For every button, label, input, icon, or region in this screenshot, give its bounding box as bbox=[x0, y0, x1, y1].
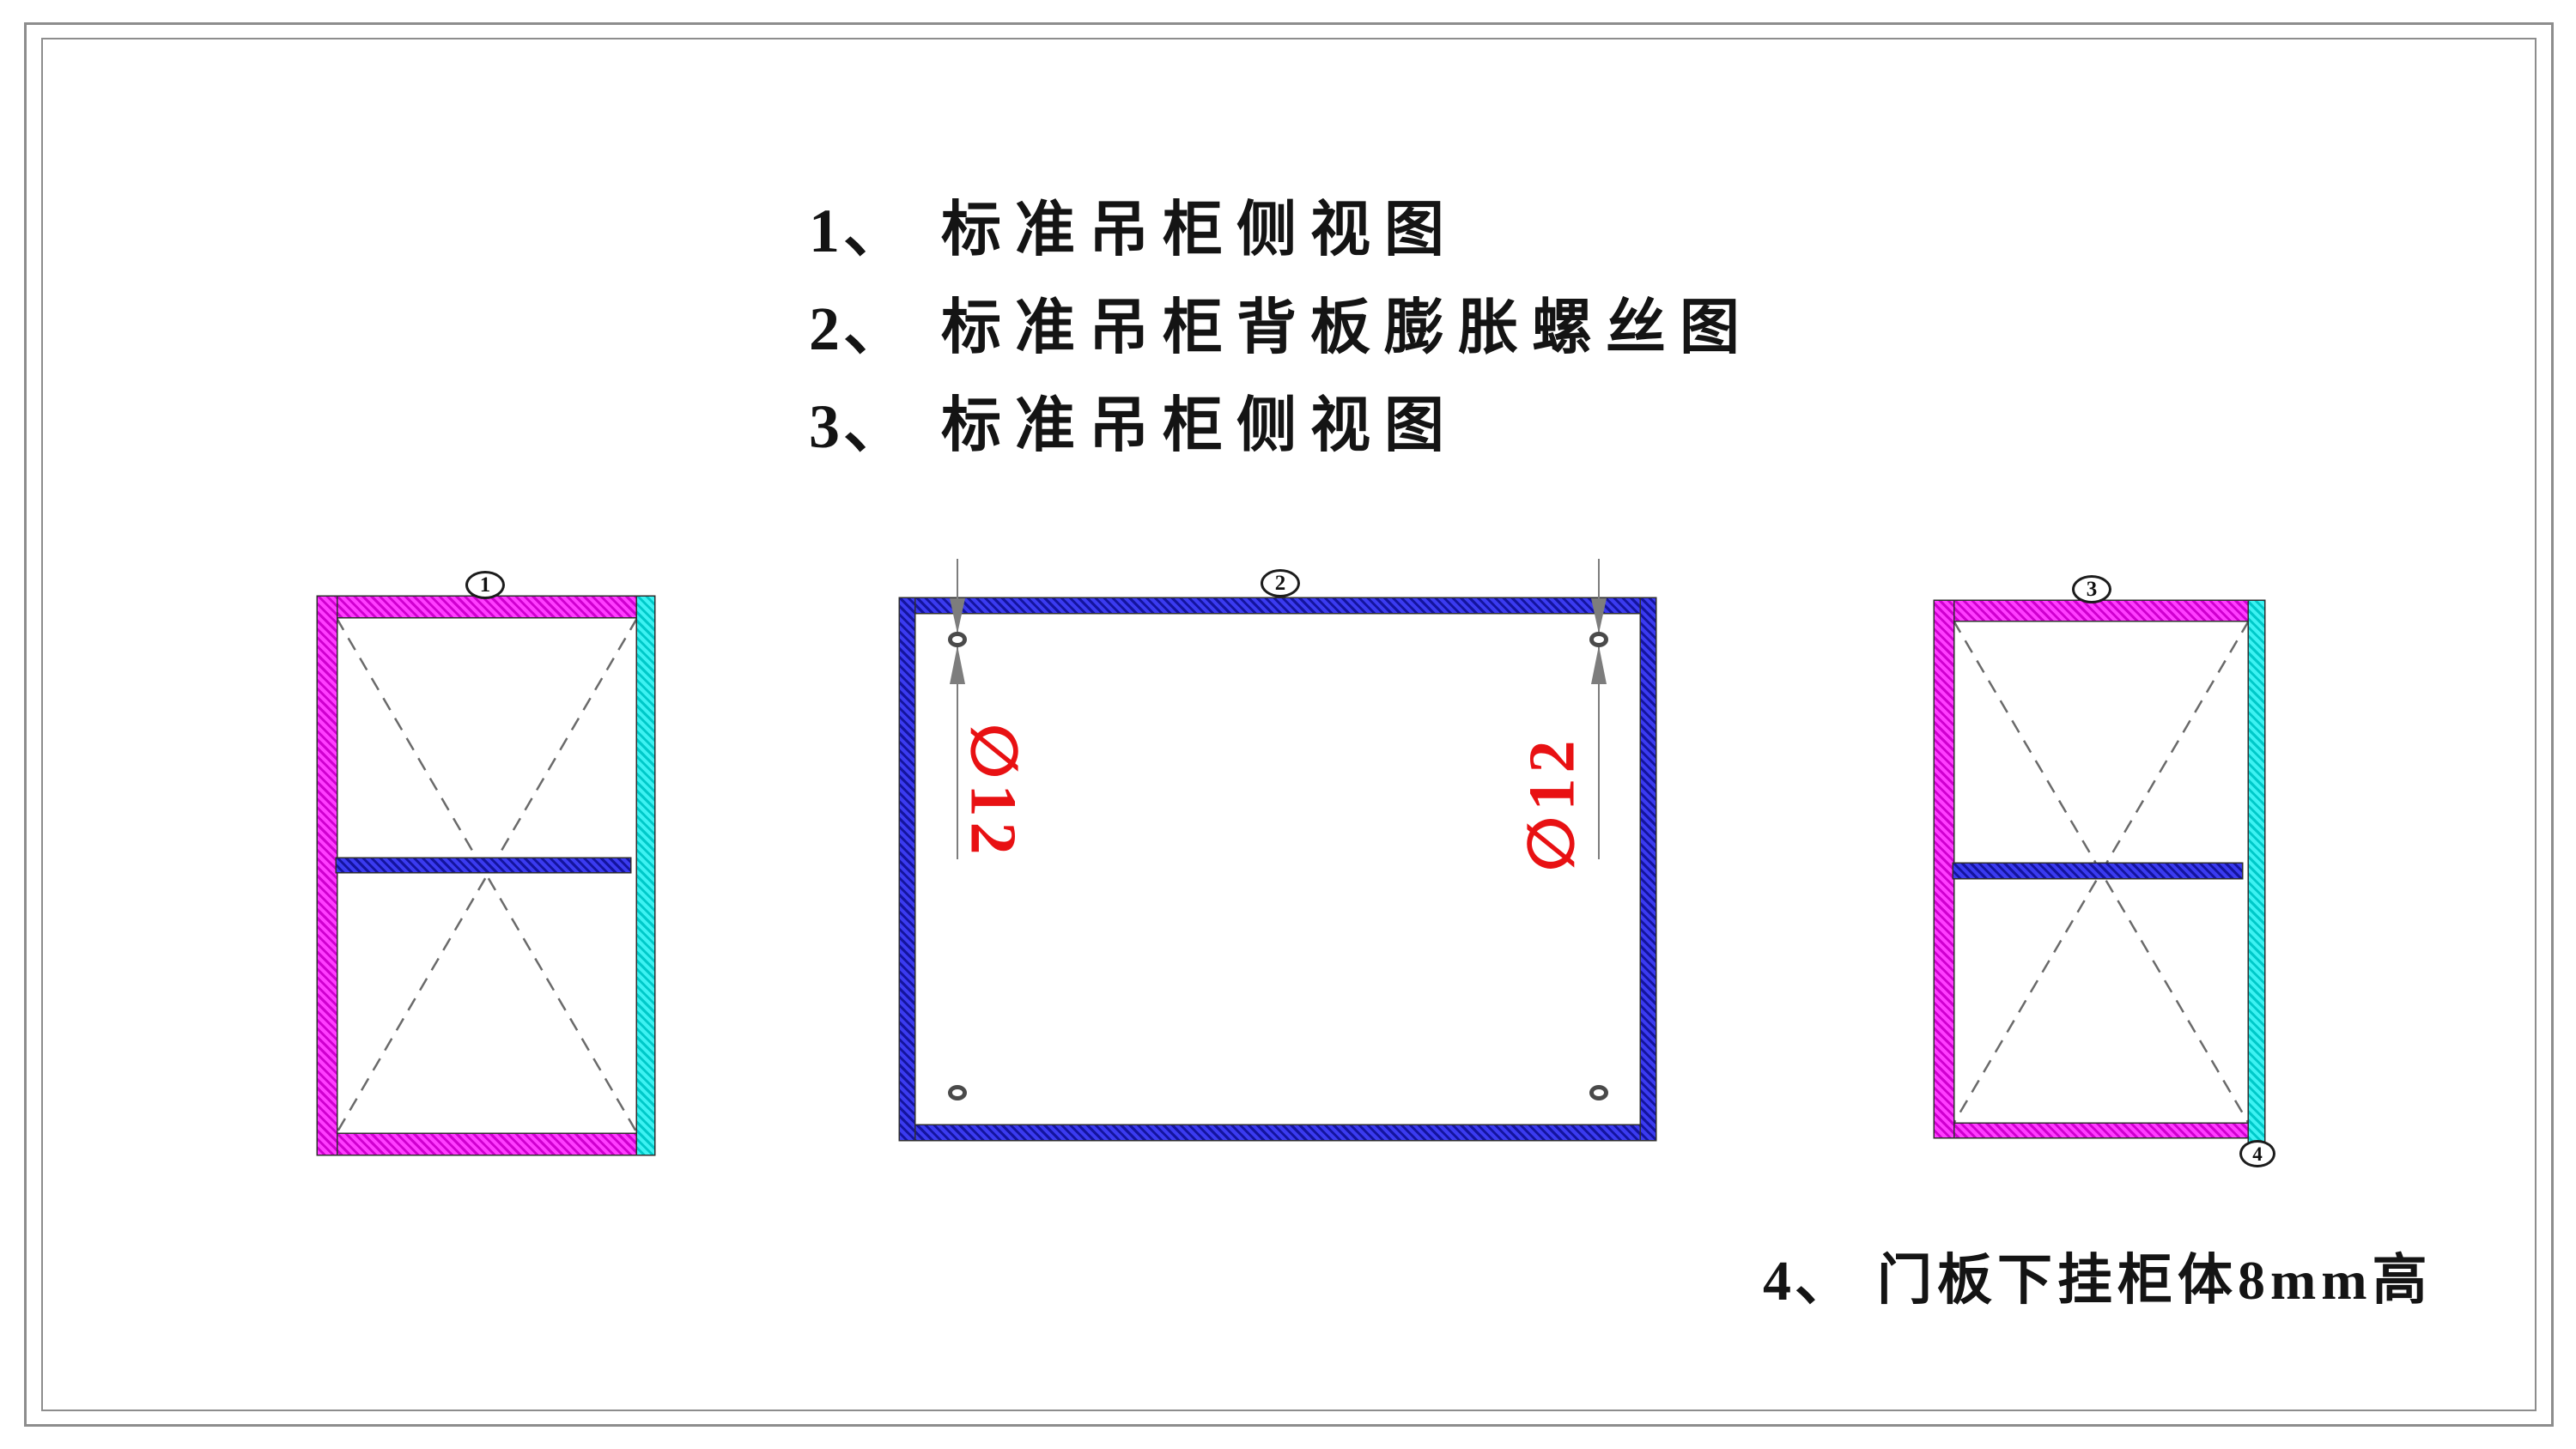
title-item-2: 2、 标准吊柜背板膨胀螺丝图 bbox=[809, 273, 1753, 371]
shelf-bar bbox=[1953, 864, 2242, 878]
title-text: 标准吊柜侧视图 bbox=[941, 377, 1458, 464]
note-number: 4、 bbox=[1763, 1234, 1855, 1317]
title-number: 2、 bbox=[809, 277, 908, 367]
cabinet-top-panel bbox=[1935, 601, 2249, 621]
screw-bottom-right bbox=[1589, 1085, 1608, 1100]
shelf-bar bbox=[337, 858, 630, 872]
balloon-4: 4 bbox=[2239, 1140, 2275, 1167]
screw-top-left bbox=[948, 632, 967, 647]
cross-brace-dashes bbox=[337, 618, 637, 1133]
title-text: 标准吊柜侧视图 bbox=[941, 181, 1458, 268]
arrow-down-right bbox=[1591, 598, 1607, 634]
title-number: 1、 bbox=[809, 179, 908, 270]
title-list: 1、 标准吊柜侧视图 2、 标准吊柜背板膨胀螺丝图 3、 标准吊柜侧视图 bbox=[809, 175, 1753, 469]
arrow-down-left bbox=[950, 598, 965, 634]
cabinet-side-view-3: 3 4 bbox=[1935, 601, 2264, 1144]
screw-bottom-left bbox=[948, 1085, 967, 1100]
title-text: 标准吊柜背板膨胀螺丝图 bbox=[941, 279, 1753, 366]
cabinet-side-view-1: 1 bbox=[318, 597, 654, 1155]
balloon-1: 1 bbox=[465, 571, 505, 599]
door-panel-strip-overhang bbox=[2249, 601, 2264, 1144]
title-item-3: 3、 标准吊柜侧视图 bbox=[809, 371, 1753, 469]
cabinet-bottom-panel bbox=[1935, 1124, 2249, 1137]
balloon-2: 2 bbox=[1261, 569, 1300, 597]
balloon-3: 3 bbox=[2072, 575, 2111, 603]
drawing-canvas: 1、 标准吊柜侧视图 2、 标准吊柜背板膨胀螺丝图 3、 标准吊柜侧视图 1 2 bbox=[0, 0, 2576, 1449]
note-text: 门板下挂柜体8mm高 bbox=[1877, 1236, 2433, 1315]
cabinet-back-edge-panel bbox=[318, 597, 337, 1155]
title-number: 3、 bbox=[809, 375, 908, 465]
screw-top-right bbox=[1589, 632, 1608, 647]
title-item-1: 1、 标准吊柜侧视图 bbox=[809, 175, 1753, 273]
arrow-up-left bbox=[950, 646, 965, 684]
back-panel-border-bottom bbox=[900, 1125, 1656, 1140]
back-panel-screw-diagram: 2 ∅12 ∅12 bbox=[900, 598, 1656, 1140]
cabinet-bottom-panel bbox=[318, 1134, 637, 1155]
bottom-note: 4、 门板下挂柜体8mm高 bbox=[1763, 1234, 2433, 1317]
door-panel-strip bbox=[637, 597, 654, 1155]
arrow-up-right bbox=[1591, 646, 1607, 684]
dim-label-left: ∅12 bbox=[956, 723, 1033, 859]
cabinet-back-edge-panel bbox=[1935, 601, 1953, 1137]
cabinet-top-panel bbox=[318, 597, 637, 617]
dim-label-right: ∅12 bbox=[1513, 735, 1590, 871]
